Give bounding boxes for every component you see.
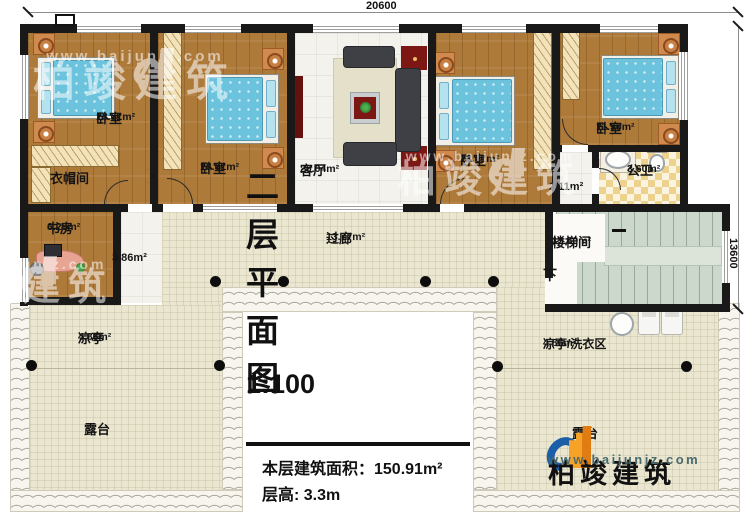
column-icon	[210, 276, 221, 287]
room-area: 13.77m²	[326, 232, 365, 244]
door-gap	[592, 168, 599, 194]
mattress-icon	[53, 60, 112, 116]
pillow-icon	[41, 62, 51, 86]
door-gap	[562, 145, 588, 152]
wall-b1-b2	[150, 30, 158, 208]
door-gap	[128, 204, 152, 212]
building	[404, 360, 421, 390]
wall-south-2	[152, 204, 163, 212]
computer-icon	[44, 244, 62, 257]
window-icon	[185, 24, 241, 33]
column-icon	[420, 276, 431, 287]
pavilion-right-edge	[497, 368, 688, 369]
red-mat-icon	[401, 46, 427, 70]
title-underline	[246, 442, 470, 446]
room-area: 4.86m²	[543, 338, 576, 350]
wall-b4-bottom-a	[552, 145, 562, 152]
wall-stair-top	[545, 204, 730, 212]
stair-landing	[604, 246, 722, 266]
column-icon	[26, 360, 37, 371]
room-area: 13.80m²	[552, 236, 591, 248]
mattress-icon	[452, 79, 512, 143]
sofa-icon	[343, 142, 397, 166]
room-name: 衣帽间	[50, 172, 89, 187]
sofa-icon	[395, 68, 421, 152]
terrace-left-bottom-border	[10, 490, 243, 512]
nightstand-icon	[33, 33, 55, 55]
wall-b4-bottom-b	[588, 145, 688, 152]
room-area: 4.86m²	[78, 332, 111, 344]
watermark-url: www.baijunjz.com	[293, 360, 470, 377]
bedroom3-closet	[533, 31, 552, 170]
room-name: 露台	[84, 423, 110, 438]
dimension-label-right: 13600	[727, 238, 739, 269]
door-gap	[163, 204, 193, 212]
wall-living-b3	[428, 30, 436, 208]
nightstand-icon	[33, 121, 55, 143]
room-area: 3.86m²	[112, 252, 147, 264]
wall-study-bottom	[20, 297, 121, 305]
mattress-icon	[603, 58, 663, 116]
washing-machine-icon	[661, 308, 683, 335]
window-icon	[20, 258, 29, 302]
window-icon	[600, 24, 658, 33]
window-icon	[313, 24, 399, 33]
mattress-icon	[207, 77, 263, 141]
cloakroom-closet-top	[31, 145, 119, 167]
room-area: 3.60m²	[627, 164, 660, 176]
plant-icon	[360, 102, 371, 113]
wall-b2-living	[287, 30, 295, 208]
wall-b3-b4	[552, 24, 560, 206]
pillow-icon	[439, 113, 449, 140]
room-area: 18.01m²	[460, 154, 499, 166]
bedroom2-closet	[163, 32, 182, 170]
floor-height-text: 层高: 3.3m	[262, 481, 340, 505]
room-area: 2.11m²	[549, 181, 583, 193]
page-title: 二层平面图	[246, 160, 281, 400]
drawing-scale: 1:100	[246, 369, 315, 400]
wall-south-1	[20, 204, 128, 212]
pillow-icon	[266, 111, 276, 138]
bedroom4-closet	[562, 32, 580, 100]
laundry-sink-icon	[610, 312, 634, 336]
nightstand-icon	[262, 48, 284, 70]
pillow-icon	[666, 61, 676, 85]
pillow-icon	[666, 89, 676, 113]
column-icon	[681, 361, 692, 372]
stair-direction-tick	[612, 229, 626, 232]
pillow-icon	[266, 80, 276, 107]
room-area: 18.01m²	[96, 112, 135, 124]
pillow-icon	[439, 82, 449, 109]
watermark-logo-icon	[382, 360, 420, 412]
tv-cabinet-icon	[294, 76, 303, 138]
room-area: 18.01m²	[200, 162, 239, 174]
column-icon	[492, 361, 503, 372]
column-icon	[488, 276, 499, 287]
dimension-label-top: 20600	[366, 0, 397, 12]
pillow-icon	[41, 90, 51, 114]
window-icon	[313, 204, 403, 212]
sofa-icon	[343, 46, 395, 68]
washing-machine-icon	[638, 308, 660, 335]
floor-area-text: 本层建筑面积：150.91m²	[262, 455, 443, 479]
cloakroom-closet-side	[31, 167, 51, 203]
stair-down-text: 下	[543, 268, 557, 284]
chimney	[55, 14, 75, 26]
terrace-right-border	[718, 303, 740, 512]
column-icon	[214, 360, 225, 371]
plant-icon	[76, 263, 85, 272]
door-gap	[440, 204, 464, 212]
wall-stair-bottom	[545, 304, 730, 312]
window-icon	[20, 55, 29, 119]
courtyard-left-band	[222, 312, 243, 490]
swoosh	[375, 365, 413, 403]
nightstand-icon	[658, 33, 680, 55]
nightstand-icon	[433, 150, 455, 172]
window-icon	[462, 24, 526, 33]
company-url: www.baijunjz.com	[548, 452, 700, 467]
nightstand-icon	[658, 123, 680, 145]
nightstand-icon	[433, 52, 455, 74]
courtyard-right-band	[473, 312, 497, 490]
room-area: 11.96m²	[596, 122, 635, 134]
wall-south-4	[464, 204, 552, 212]
window-icon	[77, 24, 141, 33]
stair-hall-floor	[560, 152, 592, 204]
terrace-right-bottom-border	[473, 490, 740, 512]
dimension-line-top	[28, 12, 738, 13]
terrace-left-border	[10, 303, 30, 512]
room-area: 6.29m²	[47, 222, 80, 234]
terrace-left-floor	[30, 305, 222, 490]
room-area: 20.04m²	[300, 164, 339, 176]
pavilion-left-edge	[30, 368, 222, 369]
chair-icon	[30, 262, 44, 276]
window-icon	[679, 52, 688, 120]
floor-plan-canvas: 20600 13600 卧室 18.01m² 衣帽间 卧室 18.01m² 客厅…	[0, 0, 750, 520]
